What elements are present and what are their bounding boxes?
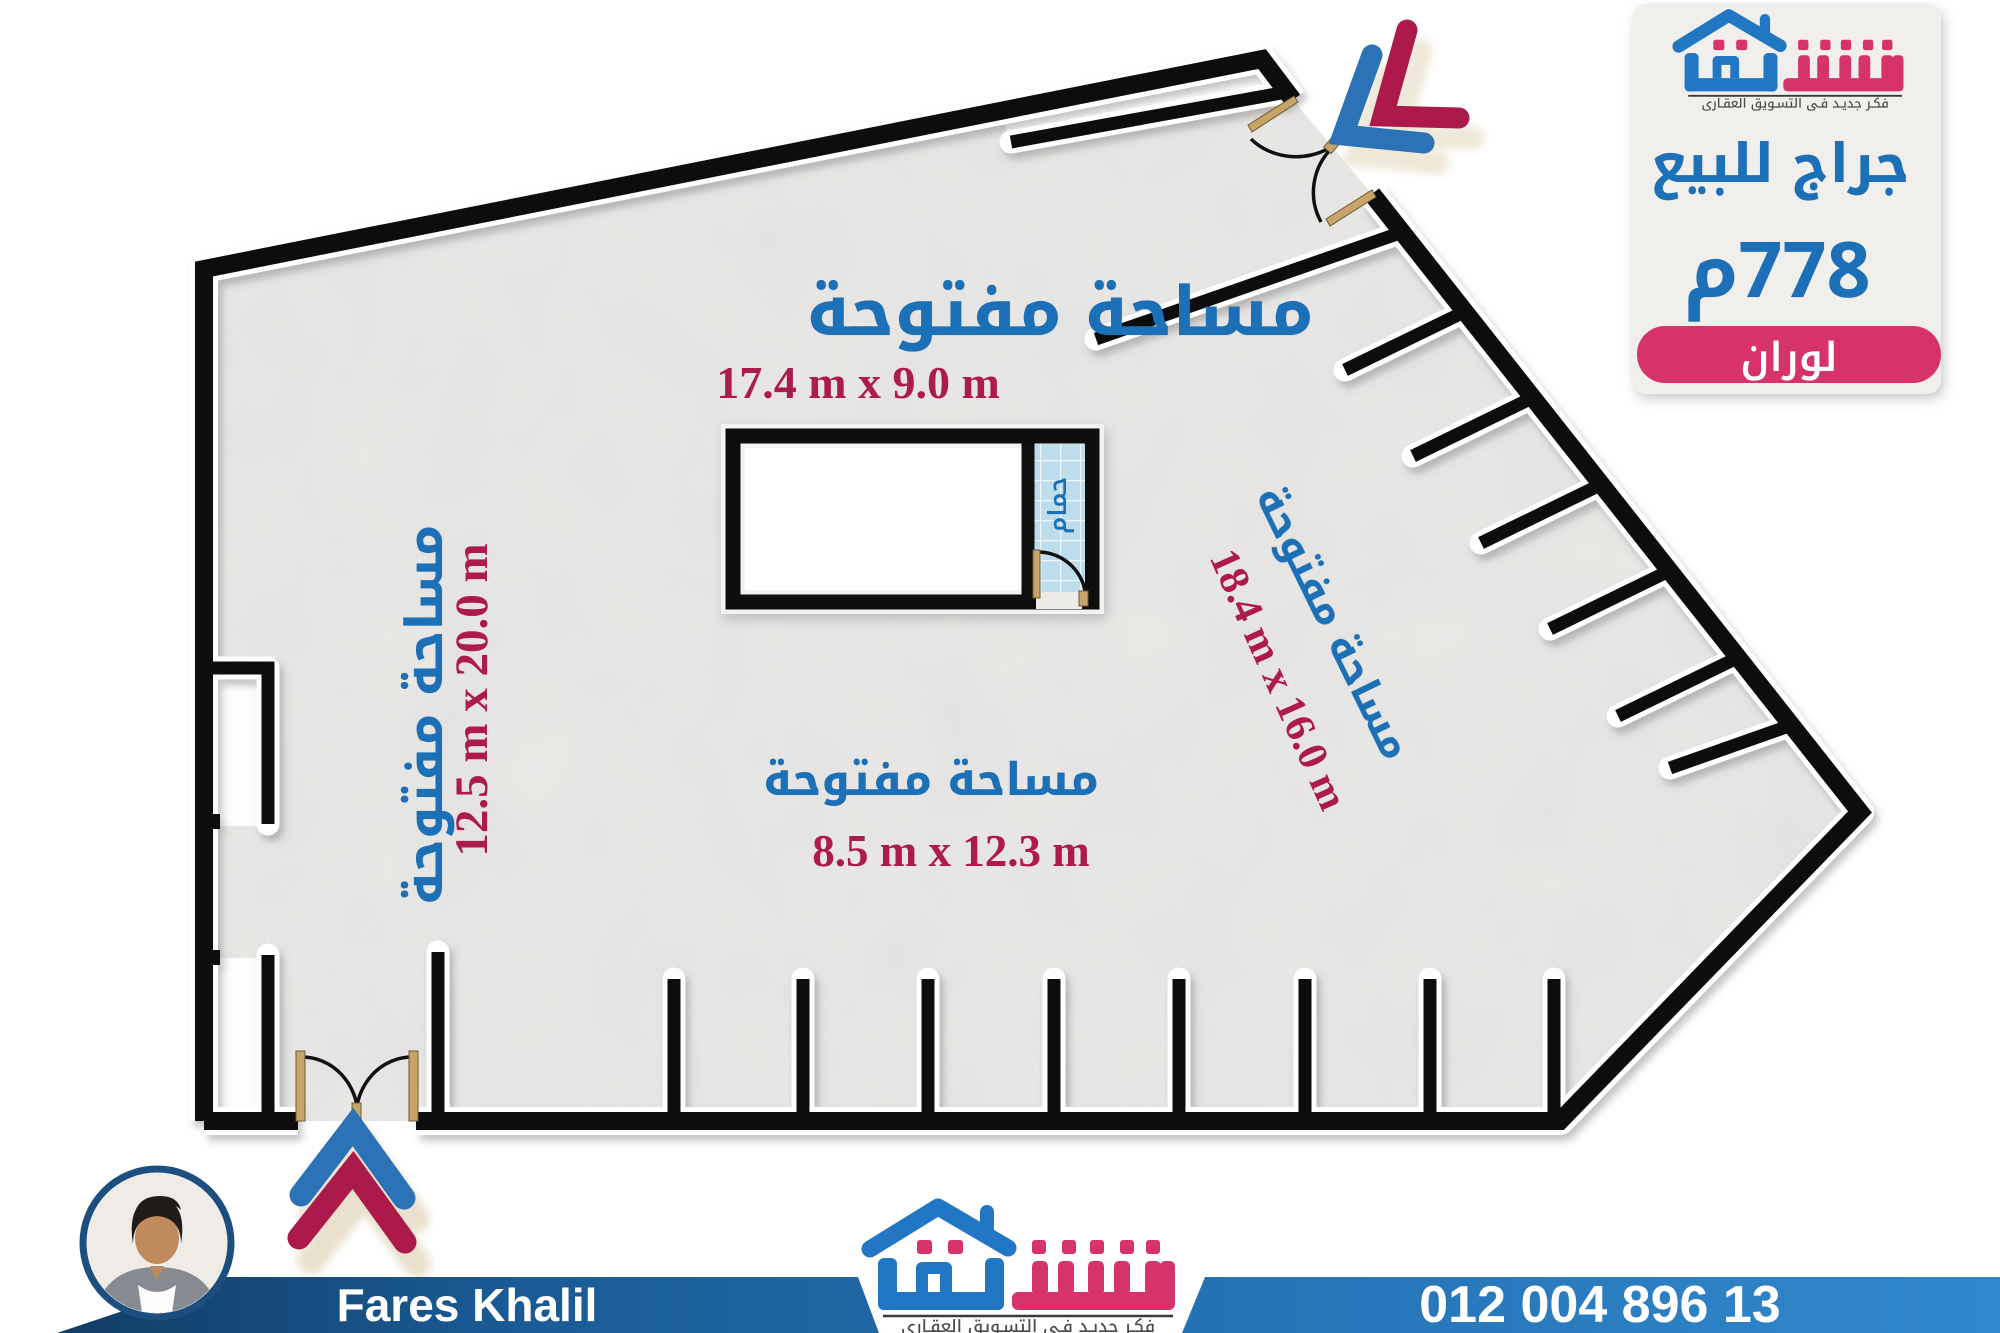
svg-text:8.5 m x 12.3 m: 8.5 m x 12.3 m bbox=[812, 826, 1089, 876]
svg-text:17.4 m x 9.0 m: 17.4 m x 9.0 m bbox=[716, 357, 1000, 408]
svg-text:012 004 896 13: 012 004 896 13 bbox=[1419, 1276, 1780, 1333]
svg-text:12.5 m x 20.0 m: 12.5 m x 20.0 m bbox=[446, 543, 498, 856]
svg-text:Fares Khalil: Fares Khalil bbox=[337, 1279, 598, 1331]
